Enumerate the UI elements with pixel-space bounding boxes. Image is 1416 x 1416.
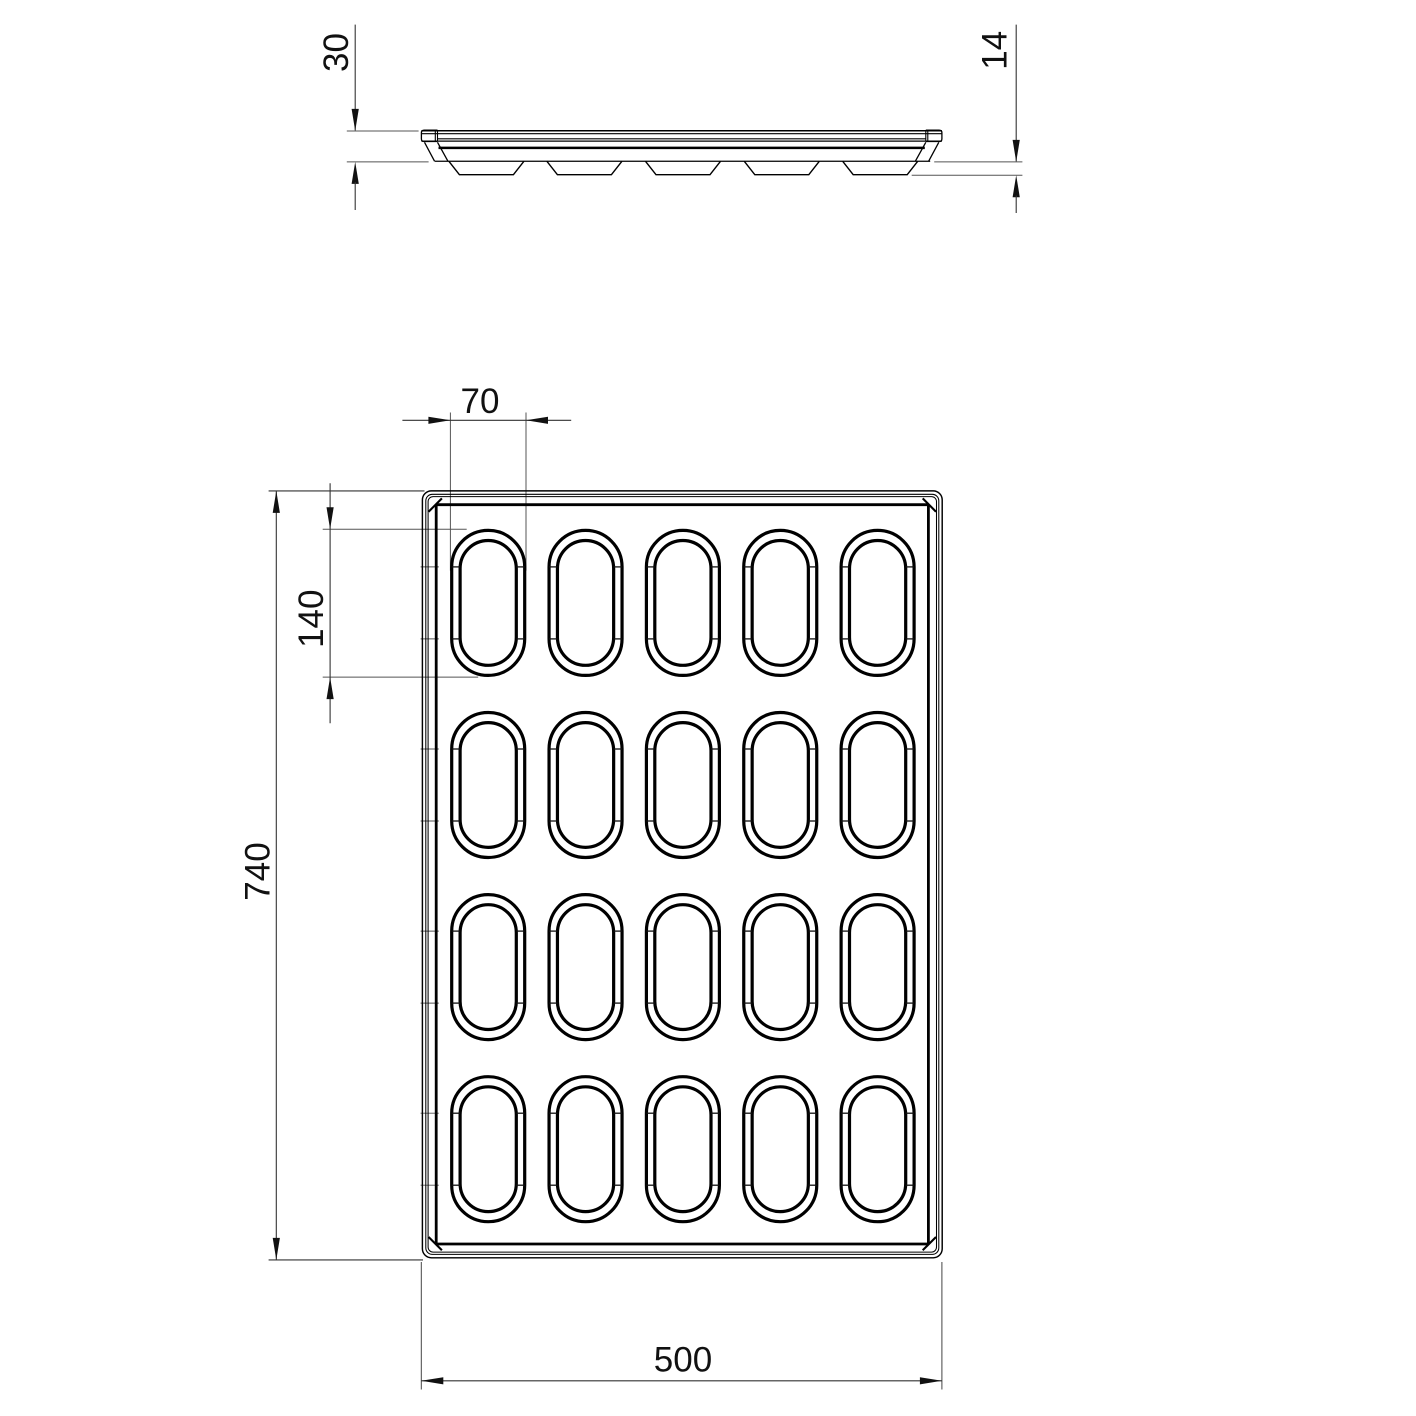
svg-text:500: 500 <box>654 1340 712 1379</box>
svg-text:70: 70 <box>461 382 500 421</box>
svg-text:30: 30 <box>317 33 356 72</box>
svg-text:740: 740 <box>238 842 277 900</box>
svg-text:14: 14 <box>976 31 1015 70</box>
svg-text:140: 140 <box>292 589 331 647</box>
